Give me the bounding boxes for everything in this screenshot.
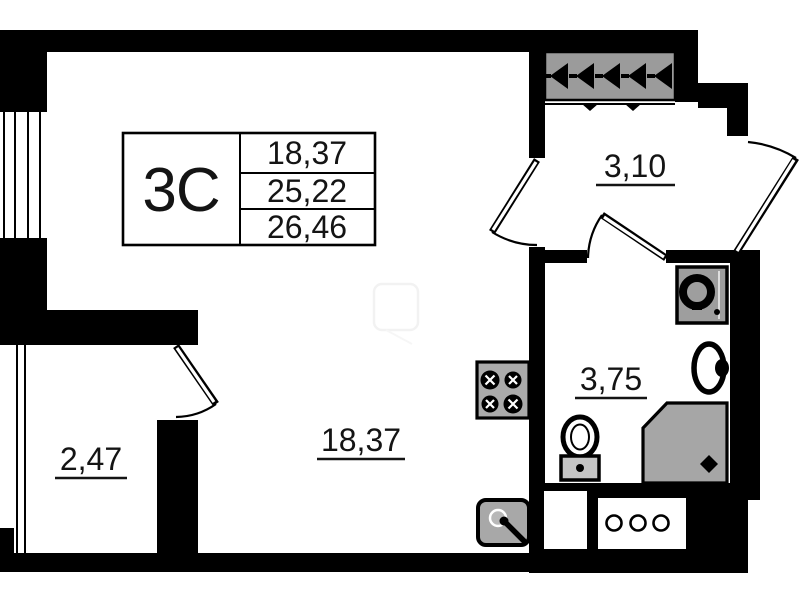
utility-shaft <box>544 491 686 549</box>
unit-spec-table: 3C 18,37 25,22 26,46 <box>123 133 375 245</box>
pipe-riser-icon <box>607 516 622 531</box>
wall-segment <box>0 30 47 112</box>
shaft-box <box>544 491 587 549</box>
unit-type-label: 3C <box>142 156 219 225</box>
room-label-hallway: 3,10 <box>604 148 666 184</box>
shower-tray-icon <box>643 403 727 483</box>
washbasin-tap <box>715 359 729 377</box>
wall-segment <box>543 250 587 263</box>
wall-segment <box>727 108 748 136</box>
room-label-living-room: 18,37 <box>321 422 401 458</box>
washing-machine-icon <box>677 267 727 323</box>
wall-segment <box>13 310 198 345</box>
room-label-balcony: 2,47 <box>60 441 122 477</box>
wall-segment <box>666 250 730 263</box>
shower-tray <box>643 403 727 483</box>
pipe-riser-icon <box>631 516 646 531</box>
wall-segment <box>675 30 698 102</box>
toilet-bowl-inner <box>571 425 589 450</box>
toilet-button <box>576 464 584 472</box>
spec-value-3: 26,46 <box>267 209 347 245</box>
wall-segment <box>730 250 760 500</box>
spec-value-1: 18,37 <box>267 135 347 171</box>
wall-segment <box>698 83 748 108</box>
wall-segment <box>157 420 198 556</box>
kitchen-sink-icon <box>478 500 529 545</box>
room-label-bathroom: 3,75 <box>580 361 642 397</box>
sink-faucet-base <box>500 517 509 526</box>
pipe-riser-icon <box>654 516 669 531</box>
spec-value-2: 25,22 <box>267 173 347 209</box>
washing-machine-knob <box>714 309 720 315</box>
wall-segment <box>748 483 760 500</box>
washing-machine-drum <box>683 278 711 306</box>
washing-machine-latch <box>692 303 702 310</box>
wall-segment <box>529 52 545 158</box>
stove-icon <box>477 362 529 418</box>
toilet-icon <box>561 417 599 480</box>
wall-segment <box>0 30 698 52</box>
floor-plan: 3C 18,37 25,22 26,46 3,10 3,75 18,37 2,4… <box>0 0 799 600</box>
